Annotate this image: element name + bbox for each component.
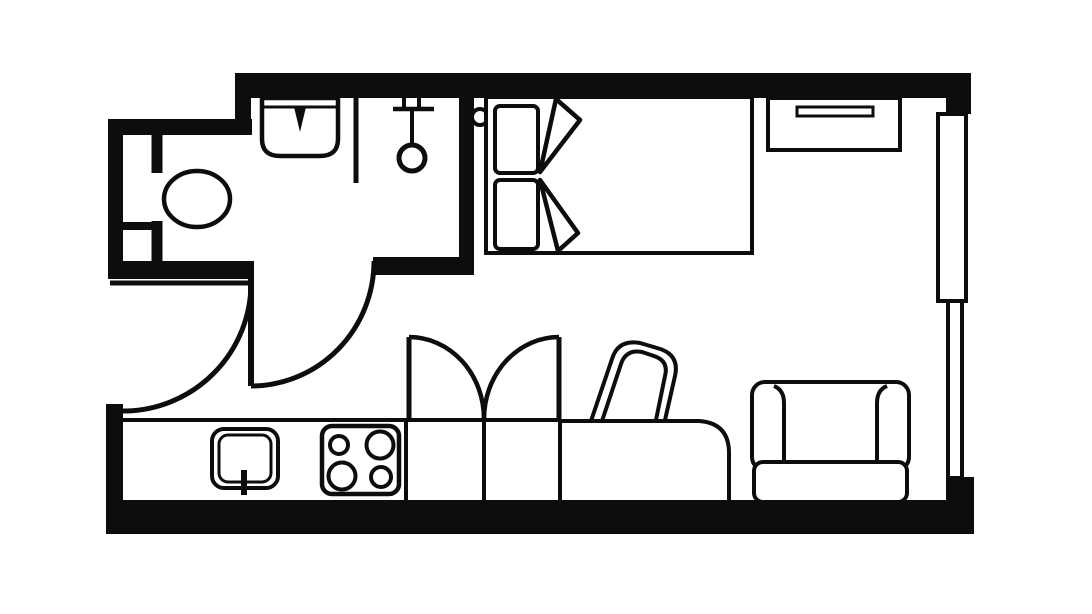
wall-top xyxy=(235,73,970,98)
wall-bathroom-bottom-left xyxy=(108,261,252,279)
shower-head xyxy=(399,145,425,171)
wall-bottom xyxy=(106,500,974,534)
hall-door-swing-arc xyxy=(251,261,374,386)
wall-bathroom-top xyxy=(108,119,252,135)
wall-corner-top-right xyxy=(946,73,971,114)
wardrobe-door-right-arc xyxy=(484,337,559,419)
armchair-seat-cushion xyxy=(754,462,907,502)
wall-left-bathroom xyxy=(108,119,123,279)
window-lower xyxy=(948,301,962,478)
bed-pillow-top xyxy=(495,106,538,173)
bed-pillow-bottom xyxy=(495,180,538,249)
wall-bathroom-bottom-right xyxy=(373,257,474,275)
wardrobe-door-left-arc xyxy=(409,337,484,419)
floor-plan-svg xyxy=(0,0,1092,614)
entry-door-swing-arc xyxy=(123,283,251,411)
dresser-drawer-slot xyxy=(797,107,873,116)
toilet-bowl xyxy=(164,171,230,227)
wall-corner-bottom-right xyxy=(946,477,974,534)
desk xyxy=(560,421,729,500)
wall-bathroom-right xyxy=(459,97,474,275)
floor-plan-page xyxy=(0,0,1092,614)
window-upper xyxy=(938,114,966,301)
armchair-body xyxy=(752,382,909,470)
